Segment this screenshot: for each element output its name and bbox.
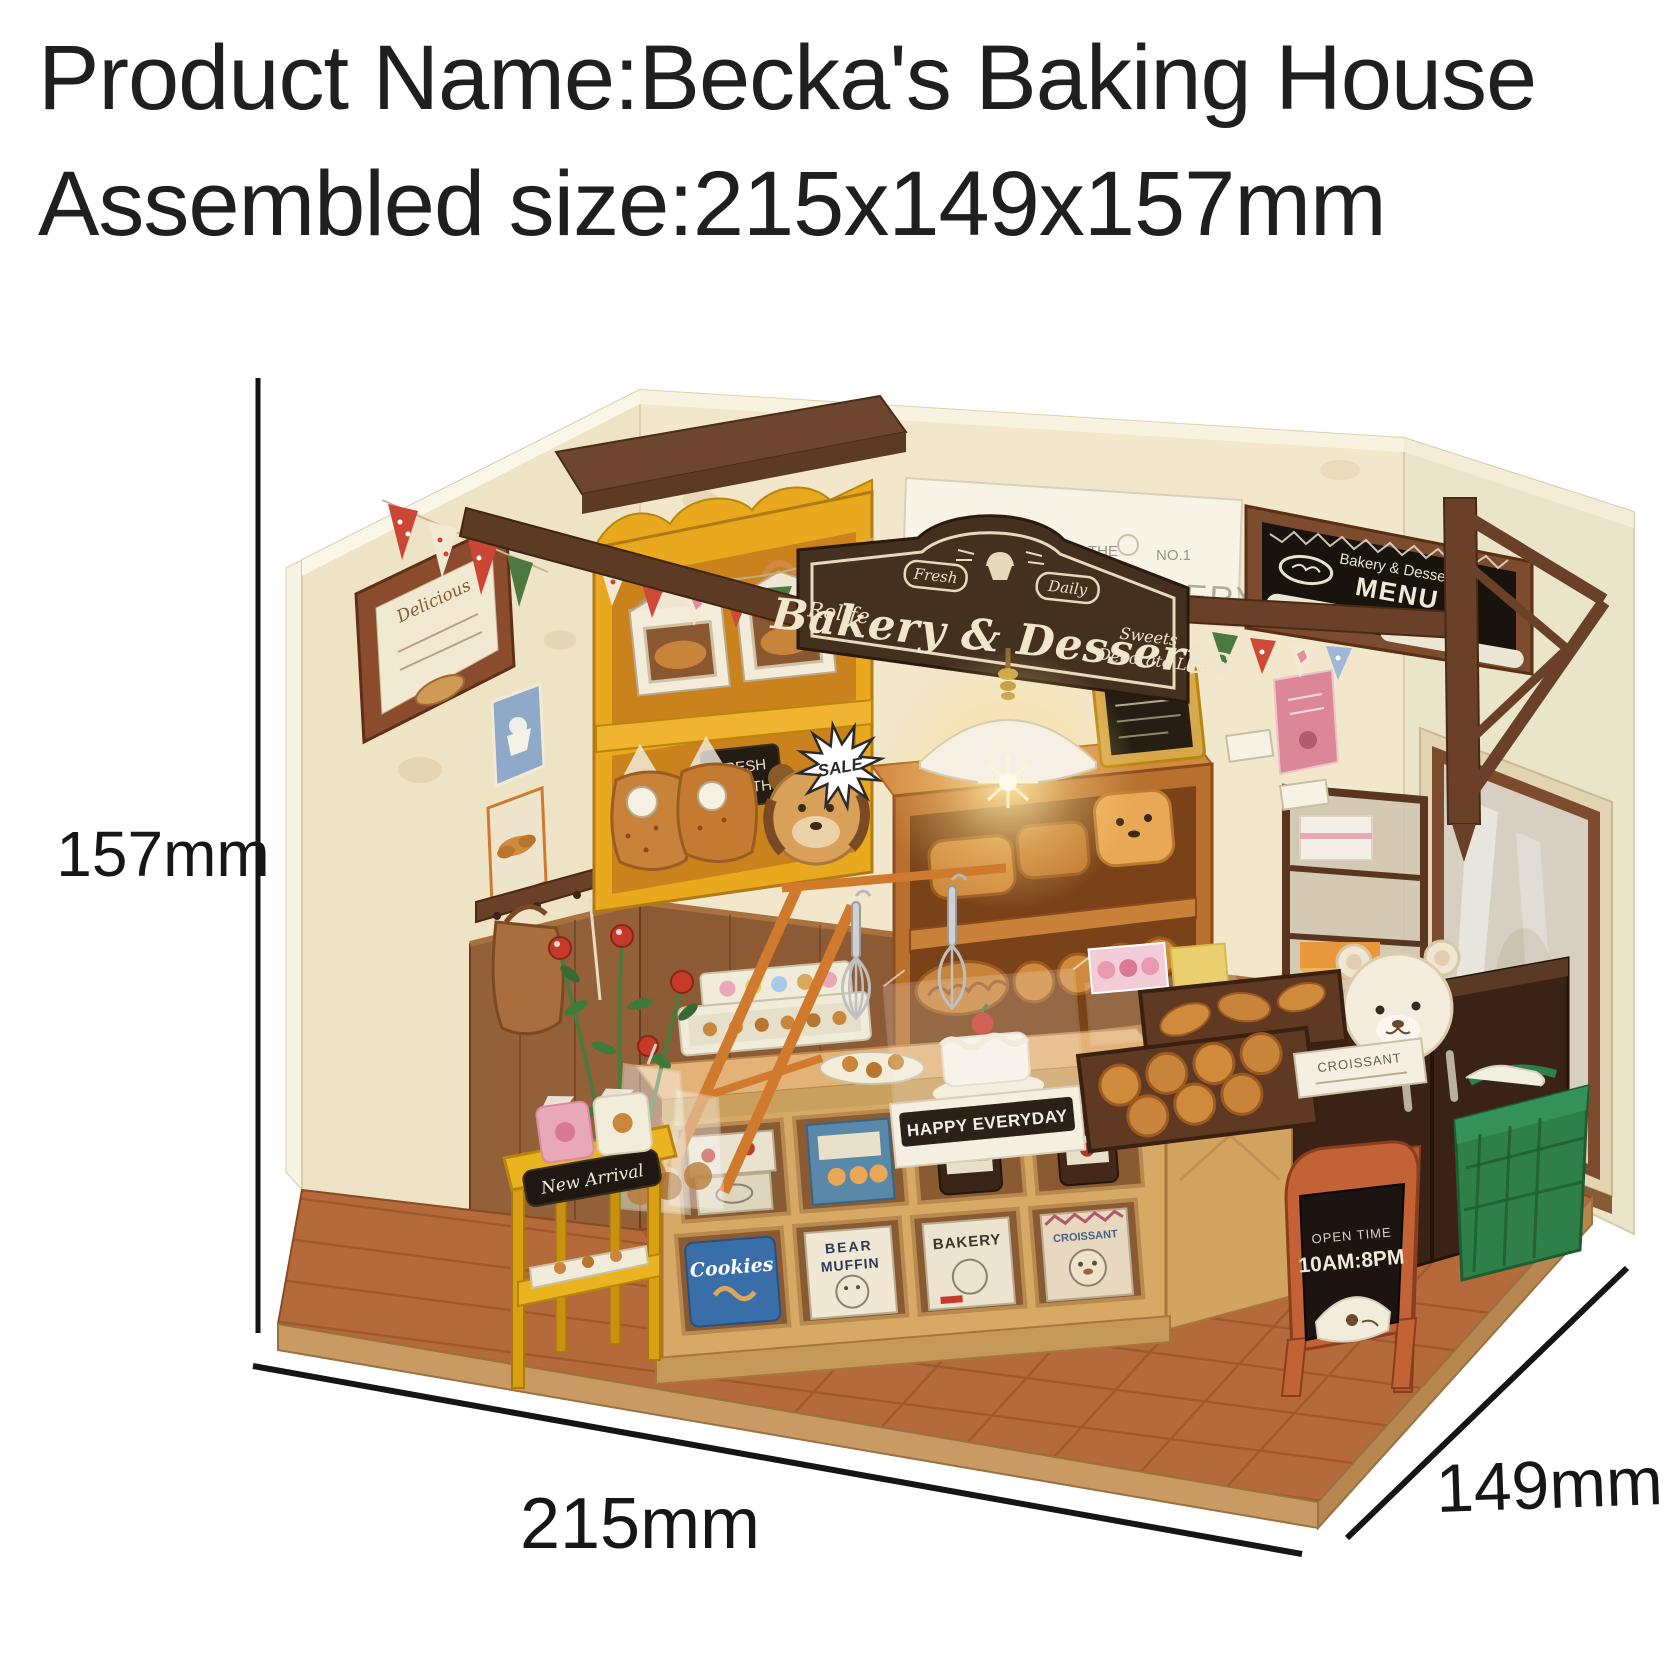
cubby-r1c2	[794, 1110, 907, 1212]
height-dimension-label: 157mm	[56, 818, 269, 890]
product-dimension-infographic: Product Name:Becka's Baking House Assemb…	[0, 0, 1680, 1680]
miniature-bakery-photo: Delicious	[0, 0, 1680, 1680]
width-dimension-label: 215mm	[520, 1484, 760, 1564]
cubby-r2c3: BAKERY	[912, 1209, 1025, 1315]
left-wall-outer-edge	[286, 560, 302, 1190]
pendant-lamp	[878, 648, 1138, 910]
cubby-r2c4: CROISSANT	[1030, 1200, 1143, 1306]
depth-dimension-label: 149mm	[1435, 1443, 1664, 1527]
poster-word-no1: NO.1	[1156, 547, 1191, 564]
cubby-r2c2: BEAR MUFFIN	[794, 1218, 907, 1324]
cupcake-card	[492, 684, 544, 786]
cubby-r2c1: Cookies	[676, 1228, 789, 1334]
pink-card	[1274, 670, 1338, 774]
